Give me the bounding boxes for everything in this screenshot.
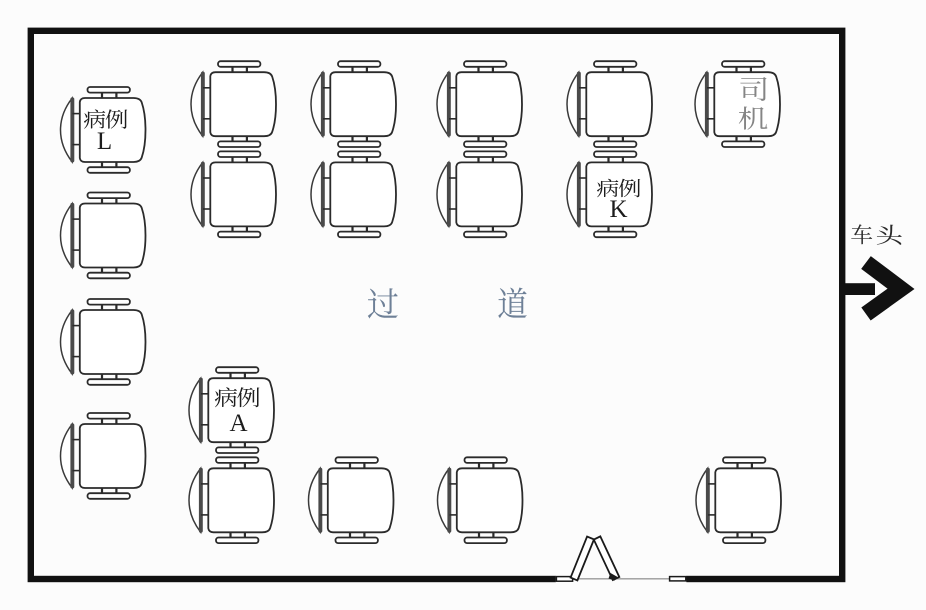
svg-text:L: L — [97, 128, 112, 155]
svg-text:A: A — [229, 410, 247, 437]
svg-text:K: K — [609, 196, 627, 223]
